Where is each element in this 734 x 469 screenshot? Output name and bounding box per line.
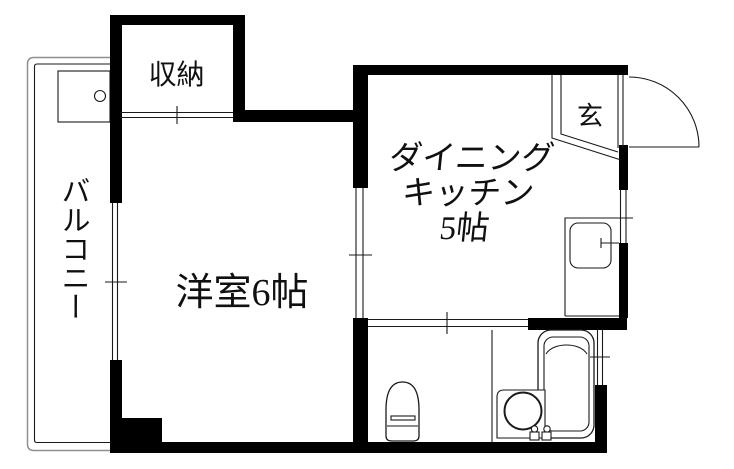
wall-closet-right: [233, 15, 245, 122]
washing-machine-pan: [58, 71, 110, 122]
entrance-label: 玄: [562, 96, 618, 133]
toilet-icon: [386, 382, 419, 441]
bathtub-outer: [538, 330, 594, 438]
door-swing-arc: [629, 77, 699, 147]
wall-bath-right: [595, 385, 607, 453]
wall-dk-bottom: [528, 318, 627, 330]
faucet-body: [530, 432, 539, 440]
dining-kitchen-label: ダイニング キッチン 5帖: [362, 142, 573, 247]
faucet-knob: [531, 426, 537, 432]
entrance-door-swing: [629, 77, 699, 147]
western-room-label: 洋室6帖: [122, 261, 362, 316]
dining-kitchen-label-line1: ダイニング: [370, 142, 574, 177]
bathtub-inner: [544, 337, 589, 431]
closet-sliding-door: [120, 106, 233, 124]
washroom-sliding-door: [368, 312, 528, 334]
bathtub-rim-curve: [546, 345, 587, 354]
washroom-area: [386, 330, 594, 442]
wall-right-jamb: [619, 145, 628, 190]
toilet-bowl: [386, 382, 419, 441]
wall-closet-top: [110, 15, 245, 25]
bathtub-icon: [538, 330, 594, 438]
dining-kitchen-label-line3: 5帖: [362, 212, 566, 247]
wall-west-upper: [110, 15, 122, 203]
wall-mid-horizontal: [233, 110, 368, 122]
drain-icon: [95, 91, 106, 102]
dining-kitchen-label-line2: キッチン: [366, 177, 570, 212]
wall-partition-lower: [353, 318, 368, 453]
wall-right-lower: [619, 243, 628, 318]
wall-dk-top: [355, 65, 628, 75]
balcony-label: バルコニー: [56, 176, 90, 336]
basin-bowl: [505, 393, 542, 430]
kitchen-counter: [565, 218, 619, 316]
washbasin-icon: [497, 390, 562, 440]
faucet-knob: [544, 426, 550, 432]
floor-plan: 収納 玄 洋室6帖 ダイニング キッチン 5帖 バルコニー: [0, 0, 734, 469]
closet-label: 収納: [120, 53, 233, 93]
kitchen-window: [613, 190, 633, 243]
kitchen-sink: [570, 223, 611, 268]
faucet-body: [542, 432, 551, 440]
wall-partition-upper: [353, 65, 368, 188]
